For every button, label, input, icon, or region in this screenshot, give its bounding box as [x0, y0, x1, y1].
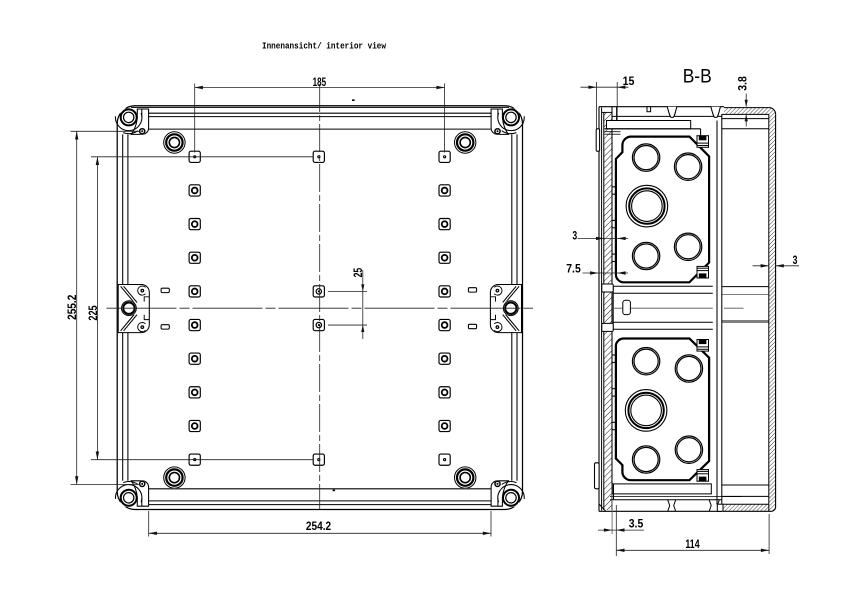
svg-text:255.2: 255.2 [65, 294, 79, 320]
svg-text:25: 25 [351, 267, 365, 277]
svg-text:15: 15 [623, 74, 635, 88]
svg-text:185: 185 [313, 75, 327, 89]
svg-text:3: 3 [572, 228, 577, 242]
svg-text:3.5: 3.5 [629, 516, 644, 530]
svg-text:3: 3 [793, 253, 798, 267]
svg-text:Innenansicht/ interior view: Innenansicht/ interior view [262, 41, 386, 52]
svg-text:B-B: B-B [683, 65, 712, 87]
svg-text:114: 114 [685, 537, 700, 551]
svg-text:3.8: 3.8 [736, 76, 750, 91]
svg-text:7.5: 7.5 [566, 261, 581, 275]
svg-text:254.2: 254.2 [306, 519, 332, 533]
svg-text:225: 225 [86, 305, 100, 321]
